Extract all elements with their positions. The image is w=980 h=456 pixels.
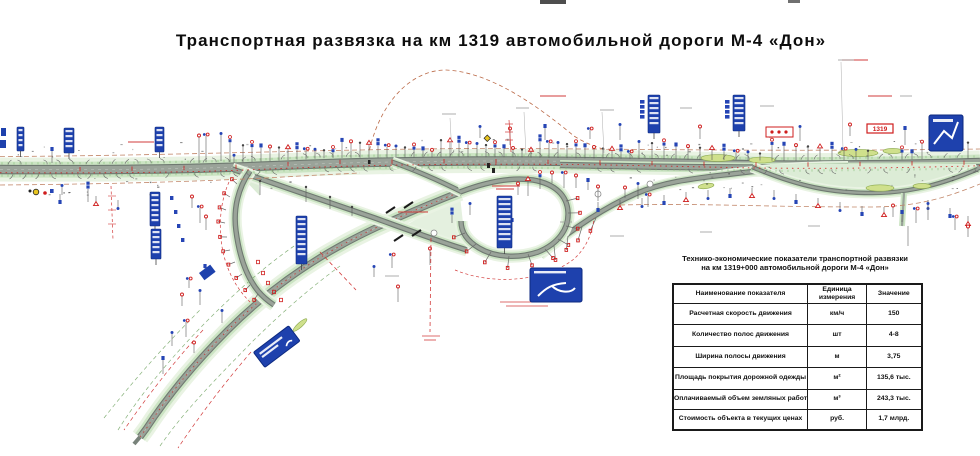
- svg-text:1319: 1319: [873, 126, 888, 133]
